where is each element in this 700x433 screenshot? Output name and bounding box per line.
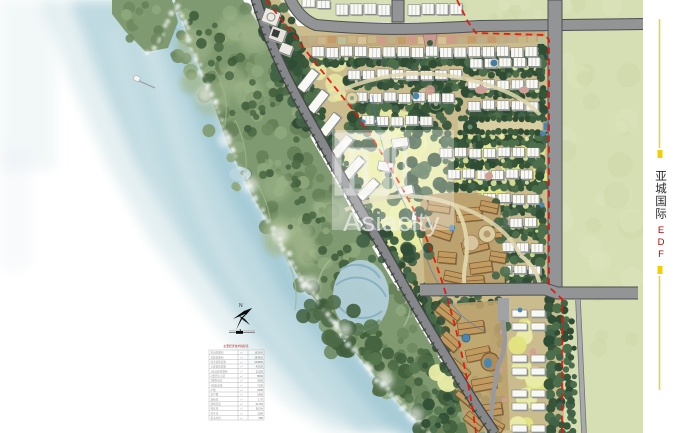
svg-text:主要经济技术指标表: 主要经济技术指标表 [223, 344, 248, 348]
svg-text:机动车位: 机动车位 [211, 416, 222, 420]
svg-text:2会所幼儿园: 2会所幼儿园 [211, 374, 226, 378]
svg-text:城: 城 [655, 183, 667, 196]
svg-text:Asiacity: Asiacity [343, 207, 440, 237]
svg-text:N: N [239, 303, 243, 309]
svg-text:m²: m² [240, 412, 243, 415]
svg-text:1商业建筑面积: 1商业建筑面积 [211, 369, 228, 373]
svg-text:m²: m² [240, 370, 243, 373]
svg-text:m²: m² [240, 389, 243, 392]
svg-text:停车位: 停车位 [211, 411, 219, 415]
svg-text:40100: 40100 [256, 365, 264, 369]
svg-text:3200: 3200 [257, 379, 263, 383]
svg-text:m²: m² [240, 380, 243, 383]
svg-text:绿化率: 绿化率 [211, 407, 219, 411]
svg-text:283900: 283900 [254, 355, 263, 359]
svg-text:21200: 21200 [256, 369, 264, 373]
svg-text:161900: 161900 [254, 351, 263, 355]
svg-text:m²: m² [240, 417, 243, 420]
svg-text:亚: 亚 [655, 171, 667, 183]
svg-text:国: 国 [655, 195, 667, 208]
svg-text:建筑密度: 建筑密度 [211, 402, 222, 406]
svg-text:4配套设施: 4配套设施 [211, 383, 223, 387]
svg-text:m²: m² [240, 384, 243, 387]
svg-text:m²: m² [240, 394, 243, 397]
svg-text:7100: 7100 [257, 383, 263, 387]
svg-text:21.8%: 21.8% [256, 402, 264, 406]
svg-text:总用地面积: 总用地面积 [211, 351, 224, 355]
svg-text:m²: m² [240, 361, 243, 364]
svg-text:m²: m² [240, 408, 243, 411]
svg-text:公建建筑面积: 公建建筑面积 [211, 365, 227, 369]
svg-text:1180: 1180 [257, 411, 263, 415]
svg-text:际: 际 [655, 208, 667, 221]
svg-text:容积率: 容积率 [211, 397, 219, 401]
svg-text:E: E [658, 225, 664, 236]
svg-text:8600: 8600 [257, 374, 263, 378]
svg-text:1.75: 1.75 [258, 397, 264, 401]
svg-text:m²: m² [240, 403, 243, 406]
svg-text:980: 980 [259, 416, 264, 420]
svg-text:户数: 户数 [211, 388, 217, 392]
svg-text:m²: m² [240, 356, 243, 359]
svg-text:住宅建筑面积: 住宅建筑面积 [211, 360, 227, 364]
svg-text:m²: m² [240, 352, 243, 355]
svg-text:总建筑面积: 总建筑面积 [211, 355, 224, 359]
svg-text:1968: 1968 [257, 388, 263, 392]
svg-text:m²: m² [240, 398, 243, 401]
svg-text:F: F [658, 249, 664, 260]
svg-text:m²: m² [240, 366, 243, 369]
svg-text:38.2%: 38.2% [256, 407, 264, 411]
svg-text:243800: 243800 [254, 360, 263, 364]
svg-text:m²: m² [240, 375, 243, 378]
svg-text:总户数: 总户数 [211, 393, 219, 397]
svg-text:3物管用房: 3物管用房 [211, 379, 223, 383]
svg-text:1968: 1968 [257, 393, 263, 397]
svg-text:D: D [658, 237, 665, 248]
